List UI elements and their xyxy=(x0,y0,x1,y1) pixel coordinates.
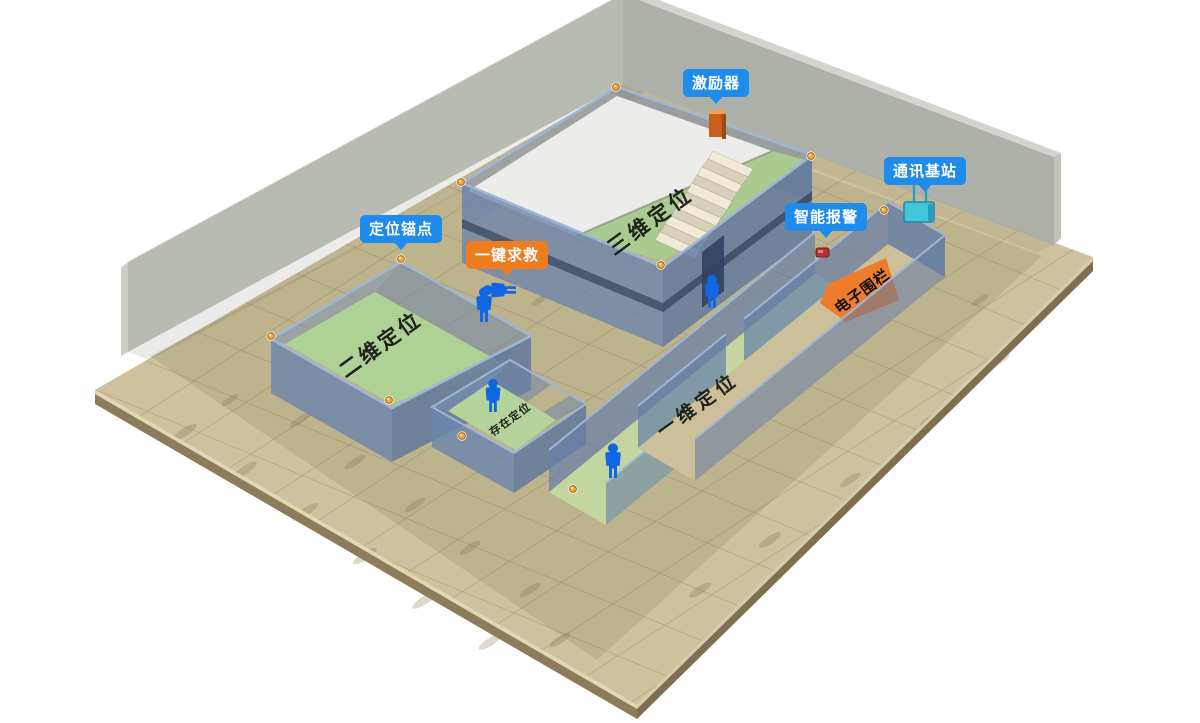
anchor-dot-icon xyxy=(611,82,620,91)
anchor-dot-icon xyxy=(568,484,577,493)
anchor-dot-icon xyxy=(456,177,465,186)
smart-alarm-device-icon xyxy=(816,248,829,257)
callout-badge-comm-base-station: 通讯基站 xyxy=(884,157,966,185)
anchor-dot-icon xyxy=(879,205,888,214)
anchor-dot-icon xyxy=(384,395,393,404)
callout-badge-one-key-sos: 一键求救 xyxy=(466,241,548,269)
callout-badge-smart-alarm: 智能报警 xyxy=(785,203,867,231)
callout-badge-positioning-anchor: 定位锚点 xyxy=(360,215,442,243)
exciter-device-icon xyxy=(709,110,726,139)
anchor-dot-icon xyxy=(806,151,815,160)
facility-3d-diagram xyxy=(0,0,1200,723)
anchor-dot-icon xyxy=(396,254,405,263)
anchor-dot-icon xyxy=(656,260,665,269)
anchor-dot-icon xyxy=(266,331,275,340)
callout-badge-exciter: 激励器 xyxy=(683,69,749,97)
scene-stage: 三维定位 二维定位 存在定位 一维定位 电子围栏 激励器 通讯基站 智能报警 定… xyxy=(0,0,1200,723)
anchor-dot-icon xyxy=(457,431,466,440)
